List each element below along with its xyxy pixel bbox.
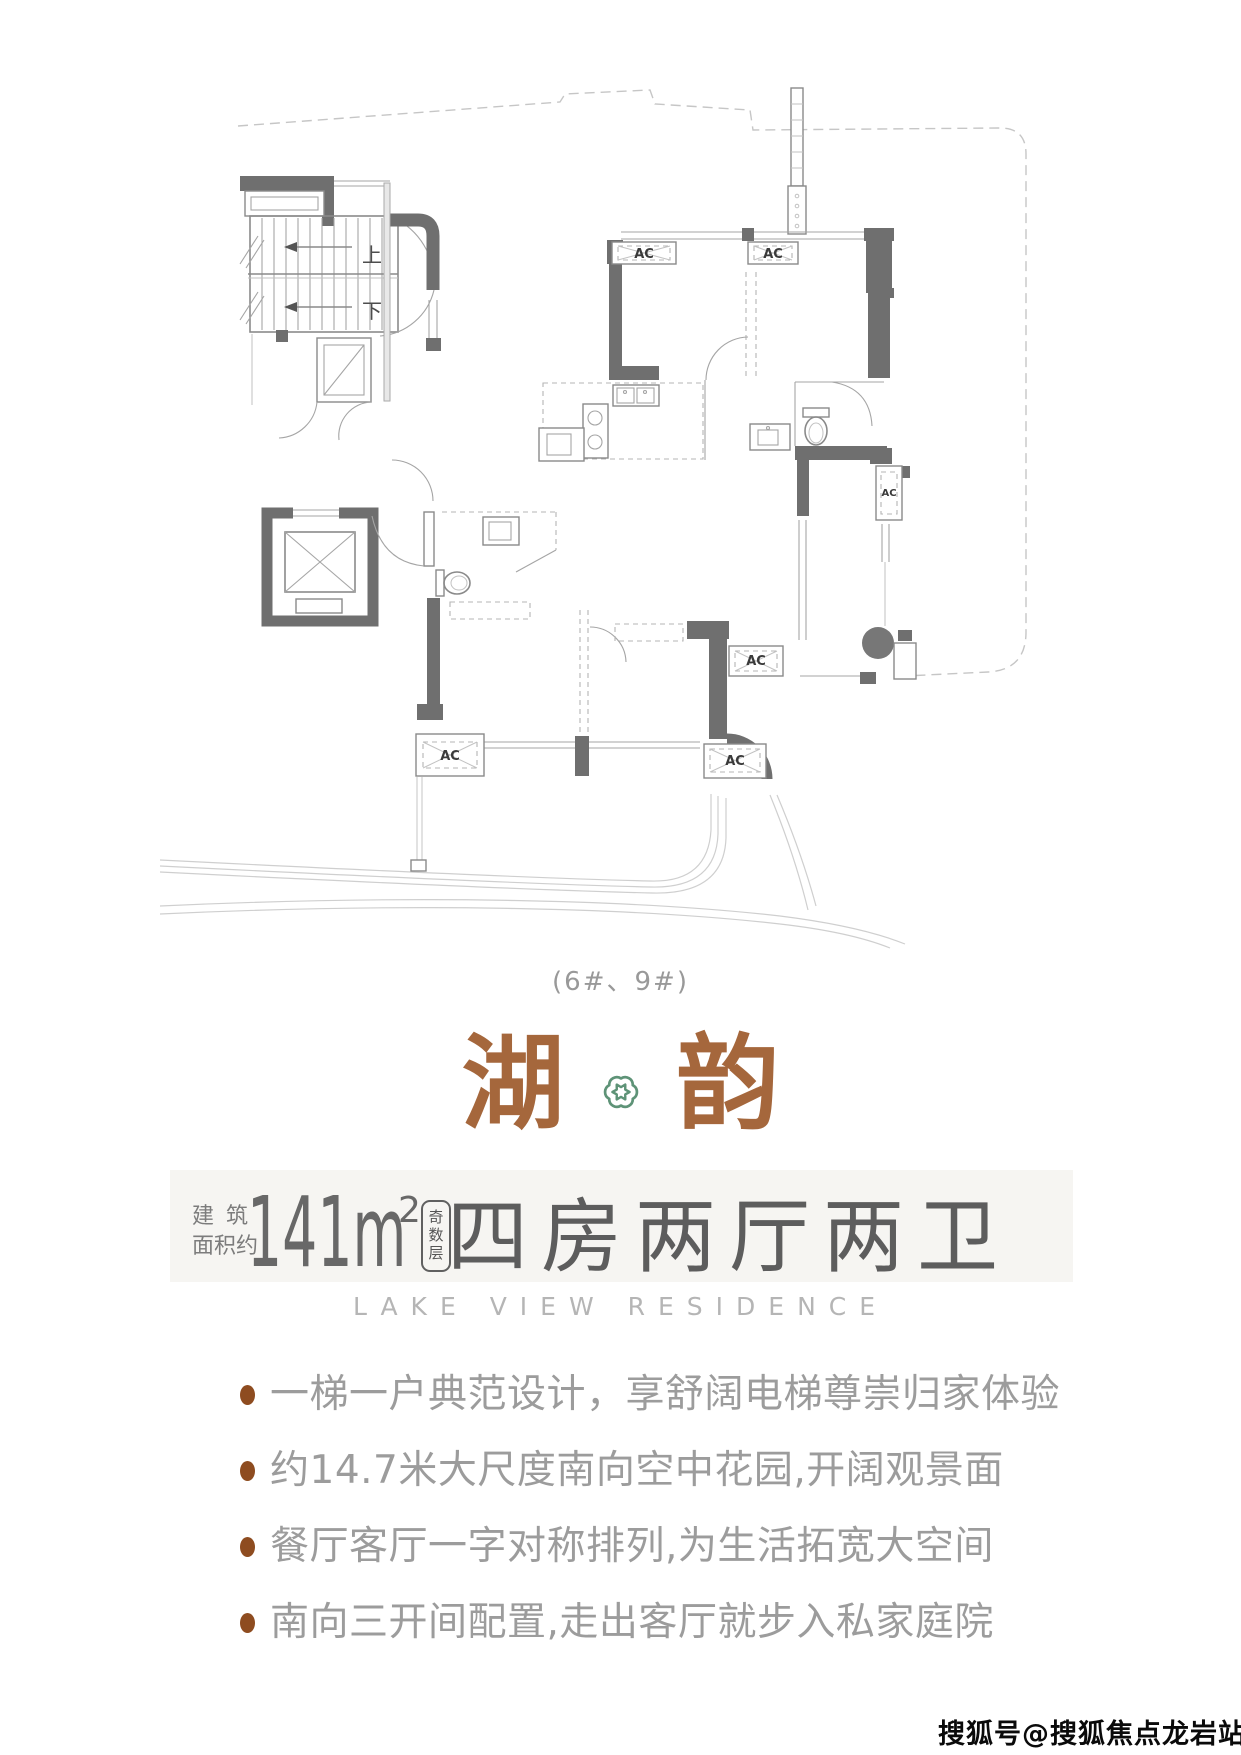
spec-band: 建筑 面积约 141m 2 奇数层 四房两厅两卫	[170, 1170, 1073, 1282]
ac-unit-right: AC	[687, 621, 783, 739]
hall-partitions	[706, 272, 756, 380]
watermark: 搜狐号@搜狐焦点龙岩站	[938, 1712, 1241, 1751]
page: 上 下	[0, 0, 1241, 1755]
right-wall: AC	[797, 448, 916, 684]
bullet-dot	[240, 1385, 255, 1405]
title-char-left: 湖	[462, 1030, 565, 1138]
staircase: 上 下	[240, 176, 441, 440]
ac-label: AC	[440, 749, 460, 764]
column	[862, 627, 894, 659]
area-number: 141m	[247, 1184, 406, 1281]
ac-label: AC	[634, 247, 654, 262]
site-paths	[160, 777, 905, 948]
bathroom-center	[436, 512, 556, 596]
ac-label: AC	[746, 654, 766, 669]
kitchen	[539, 228, 894, 461]
ac-unit-top-right: AC	[748, 242, 798, 264]
feature-text: 一梯一户典范设计，享舒阔电梯尊崇归家体验	[270, 1372, 1060, 1418]
layout-text: 四房两厅两卫	[447, 1192, 1011, 1285]
ac-label: AC	[881, 488, 896, 499]
area-superscript: 2	[398, 1190, 421, 1231]
bullet-dot	[240, 1461, 255, 1481]
ac-unit-top-left: AC	[612, 242, 676, 264]
feature-item: 约14.7米大尺度南向空中花园,开阔观景面	[240, 1448, 1060, 1494]
stair-down-label: 下	[362, 299, 382, 323]
title-char-right: 韵	[677, 1030, 780, 1138]
feature-item: 南向三开间配置,走出客厅就步入私家庭院	[240, 1600, 1060, 1646]
vent-shaft	[788, 88, 806, 234]
feature-list: 一梯一户典范设计，享舒阔电梯尊崇归家体验 约14.7米大尺度南向空中花园,开阔观…	[240, 1372, 1060, 1676]
entry-doors	[372, 460, 434, 566]
feature-text: 餐厅客厅一字对称排列,为生活拓宽大空间	[270, 1524, 994, 1570]
elevator	[267, 503, 373, 621]
feature-item: 餐厅客厅一字对称排列,为生活拓宽大空间	[240, 1524, 1060, 1570]
bullet-dot	[240, 1537, 255, 1557]
ac-label: AC	[725, 754, 745, 769]
project-title: 湖 韵	[0, 1030, 1241, 1138]
floor-plan: 上 下	[160, 70, 1080, 950]
ac-unit-bottom-right: AC	[704, 744, 766, 778]
bullet-dot	[240, 1613, 255, 1633]
feature-text: 约14.7米大尺度南向空中花园,开阔观景面	[270, 1448, 1004, 1494]
flower-icon	[602, 1073, 640, 1111]
subtitle-en: LAKE VIEW RESIDENCE	[0, 1292, 1241, 1321]
feature-text: 南向三开间配置,走出客厅就步入私家庭院	[270, 1600, 994, 1646]
bathroom-right	[750, 382, 887, 460]
feature-item: 一梯一户典范设计，享舒阔电梯尊崇归家体验	[240, 1372, 1060, 1418]
building-note: (6#、9#)	[0, 961, 1241, 998]
stair-up-label: 上	[362, 243, 382, 267]
ac-unit-bottom-left: AC	[416, 734, 484, 776]
ac-label: AC	[763, 247, 783, 262]
